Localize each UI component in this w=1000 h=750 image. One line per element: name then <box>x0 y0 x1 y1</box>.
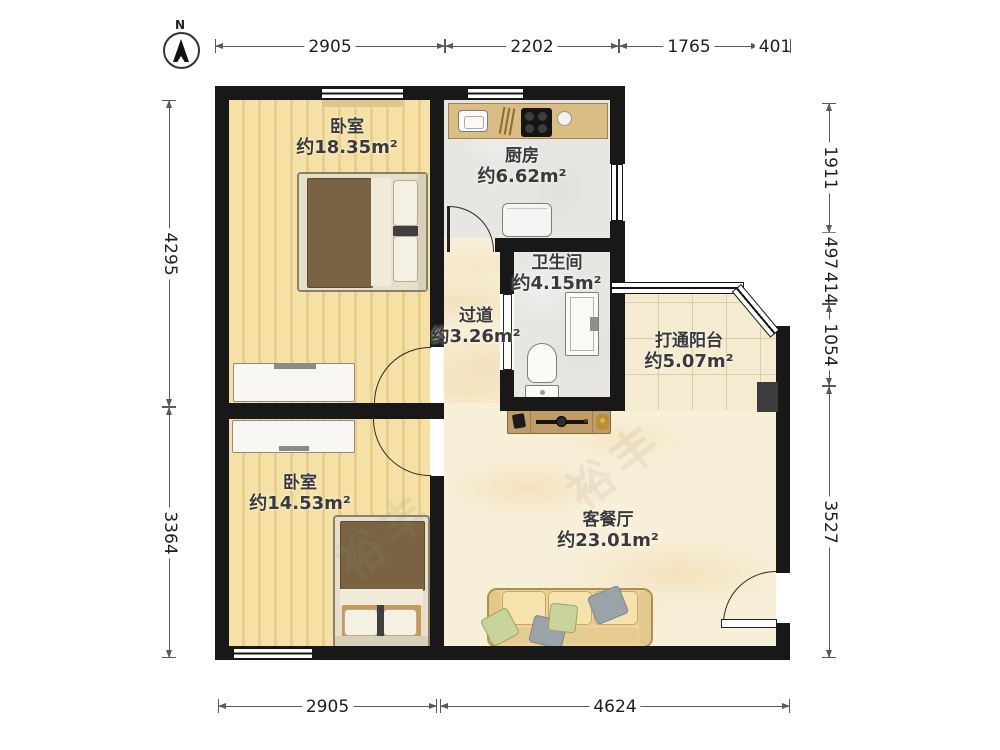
kitchen-side-window <box>611 164 623 221</box>
living-label: 客餐厅 约23.01m² <box>538 510 678 552</box>
dim-left-2-value: 3364 <box>160 507 180 558</box>
floorplan-canvas: 卧室 约18.35m² 厨房 约6.62m² 卫生间 约4.15m² 过道 约3… <box>0 0 1000 750</box>
wall-top <box>215 86 625 100</box>
bed1-pillow-top <box>393 180 418 226</box>
wall-kitchen-bottom <box>495 238 625 252</box>
bedroom2-label: 卧室 约14.53m² <box>230 473 370 515</box>
dim-top-2: 2202 <box>445 39 619 53</box>
wall-kitchen-right-upper <box>610 86 625 164</box>
dresser2 <box>232 420 355 453</box>
bedroom1-window-sill <box>322 100 403 107</box>
living-name: 客餐厅 <box>538 510 678 530</box>
wall-bedroom2-right <box>430 476 444 646</box>
dim-right-1-value: 1911 <box>820 142 840 193</box>
hallway-area: 约3.26m² <box>411 326 541 348</box>
bed2-blanket <box>340 521 425 591</box>
bed2-gap <box>377 605 384 638</box>
bed1-blanket <box>307 178 373 288</box>
dim-top-4: 401 <box>759 39 791 53</box>
dim-right-4: 1054 <box>822 304 836 386</box>
balcony-label: 打通阳台 约5.07m² <box>619 331 759 373</box>
balcony-window <box>611 282 744 294</box>
shower-fixture <box>590 317 598 331</box>
bed2-pillow-left <box>344 609 378 636</box>
dim-left-1-value: 4295 <box>160 228 180 279</box>
dim-top-1: 2905 <box>215 39 445 53</box>
tv-console <box>507 410 611 434</box>
dim-bottom-1-value: 2905 <box>302 697 353 717</box>
wall-pillar <box>757 382 778 412</box>
bedroom1-window <box>321 88 404 99</box>
dresser1 <box>233 363 355 402</box>
dim-top-3-value: 1765 <box>663 37 714 57</box>
kitchen-area: 约6.62m² <box>462 166 582 188</box>
bed2-headboard <box>335 636 428 646</box>
compass: N <box>163 18 203 74</box>
dresser2-handle <box>279 446 309 451</box>
bowl-icon <box>557 111 572 126</box>
wall-left <box>215 86 229 660</box>
plant-icon <box>596 414 609 430</box>
wall-right-lower <box>776 623 790 646</box>
compass-label: N <box>175 18 185 32</box>
dim-top-1-value: 2905 <box>304 37 355 57</box>
living-area: 约23.01m² <box>538 530 678 552</box>
dim-left-2: 3364 <box>162 407 176 658</box>
bedroom1-name: 卧室 <box>277 117 417 137</box>
bedroom1-label: 卧室 约18.35m² <box>277 117 417 159</box>
dim-right-5-value: 3527 <box>820 496 840 547</box>
dim-top-4-value: 401 <box>755 37 795 57</box>
north-arrow-icon <box>163 32 200 69</box>
dim-bottom-2-value: 4624 <box>589 697 640 717</box>
sofa-armrest-right <box>639 591 651 645</box>
dim-right-2-value: 497 <box>820 232 840 272</box>
kitchen-name: 厨房 <box>462 146 582 166</box>
sofa <box>487 588 653 648</box>
wall-right-upper <box>776 326 790 573</box>
bed1-headboard <box>418 174 426 290</box>
bedroom1-area: 约18.35m² <box>277 137 417 159</box>
bed2-pillow-right <box>383 609 417 636</box>
dim-right-2: 497 <box>822 233 836 272</box>
dim-bottom-1: 2905 <box>218 699 437 713</box>
bed1 <box>297 172 428 292</box>
bed2 <box>333 515 430 648</box>
balcony-area: 约5.07m² <box>619 351 759 373</box>
sofa-pillow-green-center <box>548 603 579 634</box>
dim-top-3: 1765 <box>619 39 759 53</box>
hallway-label: 过道 约3.26m² <box>411 306 541 348</box>
wall-bath-left-lower <box>500 370 514 397</box>
dim-right-5: 3527 <box>822 386 836 658</box>
tv-mount <box>556 416 567 427</box>
stove-icon <box>521 108 552 137</box>
kitchen-counter <box>448 103 608 139</box>
dim-right-1: 1911 <box>822 103 836 233</box>
bed1-gap <box>393 226 418 236</box>
hallway-name: 过道 <box>411 306 541 326</box>
utensils-icon <box>499 107 519 136</box>
entry-door-leaf <box>721 619 777 628</box>
wall-bath-bottom <box>500 397 625 411</box>
fridge <box>502 203 552 237</box>
toilet-bowl <box>527 343 557 383</box>
bathroom-name: 卫生间 <box>497 253 617 273</box>
dim-right-4-value: 1054 <box>820 319 840 370</box>
bed1-pillow-bottom <box>393 236 418 282</box>
deco-icon <box>512 413 526 429</box>
dresser1-handle <box>274 364 316 369</box>
dim-right-3-value: 414 <box>820 268 840 308</box>
bathroom-label: 卫生间 约4.15m² <box>497 253 617 295</box>
shower <box>565 292 599 356</box>
dim-left-1: 4295 <box>162 100 176 407</box>
balcony-name: 打通阳台 <box>619 331 759 351</box>
wall-mid <box>215 403 444 419</box>
dim-bottom-2: 4624 <box>440 699 790 713</box>
bedroom2-name: 卧室 <box>230 473 370 493</box>
kitchen-label: 厨房 约6.62m² <box>462 146 582 188</box>
sink-basin <box>464 116 484 129</box>
kitchen-top-window <box>467 88 524 99</box>
bed2-fold <box>340 589 423 605</box>
dim-top-2-value: 2202 <box>506 37 557 57</box>
bedroom2-window <box>233 648 313 659</box>
bedroom2-area: 约14.53m² <box>230 493 370 515</box>
kitchen-door-leaf <box>447 206 450 252</box>
sink-icon <box>458 110 488 132</box>
dim-right-3: 414 <box>822 272 836 304</box>
bed1-fold <box>371 178 391 286</box>
bathroom-area: 约4.15m² <box>497 273 617 295</box>
toilet <box>525 343 559 399</box>
